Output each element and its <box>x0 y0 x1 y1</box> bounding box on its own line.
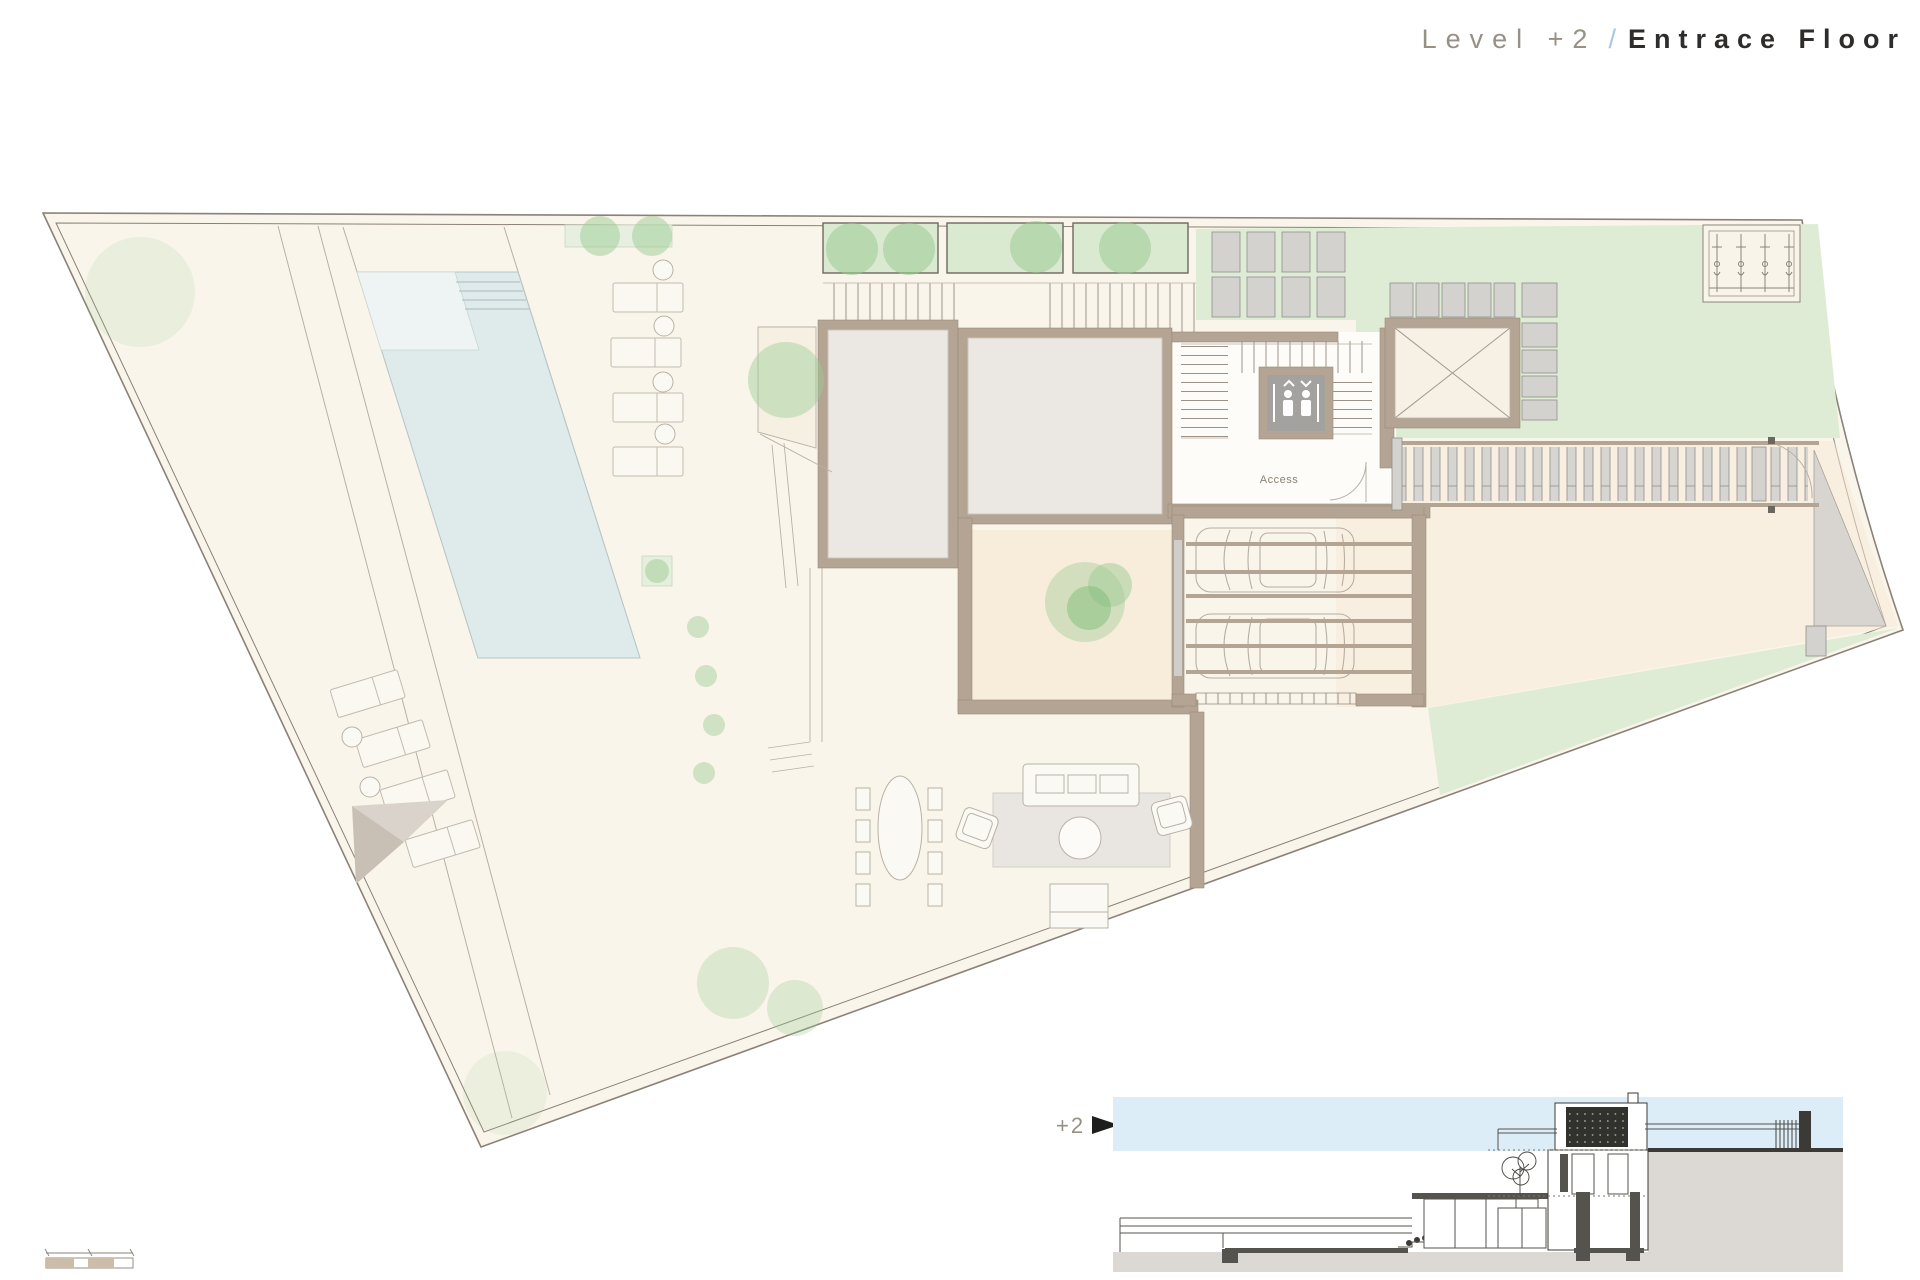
ramp-slab <box>1806 626 1826 656</box>
sofa <box>1023 764 1139 806</box>
garage-door <box>1172 693 1424 706</box>
site-plan-drawing: Access <box>0 0 1920 1280</box>
room-west <box>818 320 958 568</box>
section-deck <box>1120 1218 1412 1252</box>
dining-table <box>878 776 922 880</box>
access-label: Access <box>1260 474 1298 486</box>
room-center <box>958 328 1172 524</box>
coffee-table <box>1059 817 1101 859</box>
elevator <box>1259 367 1333 439</box>
equipment-enclosure <box>1703 225 1800 302</box>
perforated-screen <box>1566 1107 1628 1147</box>
section-level-label: +2 <box>1056 1113 1085 1138</box>
floor-plan-page: Level +2 / Entrace Floor <box>0 0 1920 1280</box>
planter-boxes <box>823 221 1188 275</box>
section-drawing: +2 <box>1056 1093 1843 1272</box>
scale-bar <box>45 1249 134 1268</box>
lightwell <box>1385 318 1520 428</box>
daybed <box>1050 884 1108 928</box>
section-tree <box>1502 1152 1536 1196</box>
